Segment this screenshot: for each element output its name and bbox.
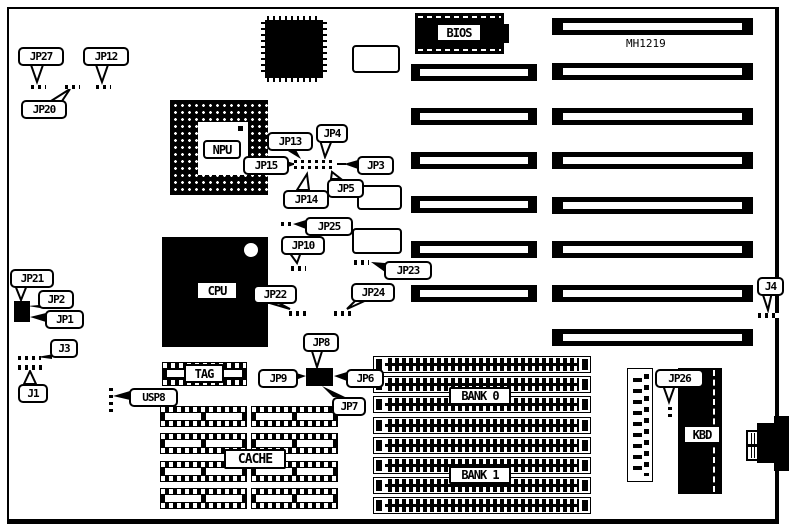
isa-slot-short <box>411 108 537 125</box>
cpu-pin1-dot <box>244 243 258 257</box>
jumper-cluster-jp8-jp9-jp6-jp7 <box>306 368 333 386</box>
jumper-cluster-jp13-jp15-jp3-jp4-jp5-jp14 <box>293 157 333 172</box>
isa-slot-long <box>552 197 753 214</box>
isa-slot-long <box>552 108 753 125</box>
isa-slot-short <box>411 152 537 169</box>
isa-slot-long <box>552 63 753 80</box>
callout-jp27: JP27 <box>18 47 64 66</box>
component-box <box>352 228 402 254</box>
callout-jp12: JP12 <box>83 47 129 66</box>
callout-j1: J1 <box>18 384 48 403</box>
callout-jp13: JP13 <box>267 132 313 151</box>
callout-jp23: JP23 <box>384 261 432 280</box>
isa-slot-short <box>411 241 537 258</box>
callout-jp2: JP2 <box>38 290 74 309</box>
jumper-j1 <box>14 363 48 372</box>
callout-jp6: JP6 <box>346 369 384 388</box>
callout-jp22: JP22 <box>253 285 297 304</box>
callout-jp1: JP1 <box>45 310 84 329</box>
qfp-pins-right <box>323 22 327 76</box>
isa-slot-short <box>411 285 537 302</box>
jumper-jp25 <box>277 220 294 228</box>
jumper-jp26 <box>666 403 674 420</box>
simm-socket <box>373 417 591 434</box>
motherboard-jumper-diagram: MH1219 BIOS NPU CPU TAG CACHE BANK 0 BAN… <box>0 0 791 527</box>
qfp-pins-left <box>261 22 265 76</box>
isa-slot-long <box>552 18 753 35</box>
jumper-jp20 <box>61 83 82 91</box>
callout-jp7: JP7 <box>332 397 366 416</box>
callout-j4: J4 <box>757 277 784 296</box>
cpu-label: CPU <box>196 281 238 300</box>
isa-slot-short <box>411 64 537 81</box>
callout-jp24: JP24 <box>351 283 395 302</box>
callout-jp3: JP3 <box>357 156 394 175</box>
callout-jp8: JP8 <box>303 333 339 352</box>
isa-slot-short <box>411 196 537 213</box>
isa-slot-long <box>552 329 753 346</box>
jumper-usp8 <box>107 384 115 417</box>
jumper-j4 <box>754 311 781 320</box>
cache-chip <box>251 488 338 509</box>
callout-jp10: JP10 <box>281 236 325 255</box>
callout-jp14: JP14 <box>283 190 329 209</box>
power-connector-cells <box>631 371 644 479</box>
jumper-block-jp21-jp2-jp1 <box>14 301 30 322</box>
callout-jp4: JP4 <box>316 124 348 143</box>
isa-slot-long <box>552 285 753 302</box>
kbd-label: KBD <box>683 425 721 444</box>
qfp-chip <box>265 20 323 78</box>
callout-j3: J3 <box>50 339 78 358</box>
npu-pin1-dot <box>238 126 243 131</box>
jumper-jp24 <box>330 309 354 318</box>
jumper-j3 <box>14 354 43 362</box>
callout-jp5: JP5 <box>327 179 364 198</box>
bank1-label: BANK 1 <box>449 466 511 484</box>
cache-chip <box>160 488 247 509</box>
npu-label: NPU <box>203 140 241 159</box>
callout-jp15: JP15 <box>243 156 289 175</box>
jumper-jp12 <box>92 83 113 91</box>
callout-jp25: JP25 <box>305 217 353 236</box>
jumper-jp10 <box>287 264 308 273</box>
bios-label: BIOS <box>436 23 482 42</box>
jumper-jp23 <box>350 258 371 267</box>
component-box <box>352 45 400 73</box>
simm-socket <box>373 437 591 454</box>
isa-slot-long <box>552 152 753 169</box>
bios-chip-tab <box>503 24 509 43</box>
jumper-jp27 <box>27 83 48 91</box>
board-model-text: MH1219 <box>626 37 666 50</box>
keyboard-din-connector-body <box>774 416 789 471</box>
simm-socket <box>373 356 591 373</box>
cache-chip <box>251 406 338 427</box>
callout-usp8: USP8 <box>129 388 178 407</box>
bank0-label: BANK 0 <box>449 387 511 405</box>
power-connector <box>627 368 653 482</box>
tag-label: TAG <box>184 364 224 383</box>
isa-slot-long <box>552 241 753 258</box>
jumper-jp22 <box>285 309 308 318</box>
cache-chip <box>160 406 247 427</box>
power-connector-pins <box>644 374 649 476</box>
cache-label: CACHE <box>224 449 286 469</box>
callout-jp21: JP21 <box>10 269 54 288</box>
din-pin-block <box>746 444 760 461</box>
callout-jp9: JP9 <box>258 369 298 388</box>
callout-jp20: JP20 <box>21 100 67 119</box>
simm-socket <box>373 497 591 514</box>
callout-jp26: JP26 <box>655 369 704 388</box>
